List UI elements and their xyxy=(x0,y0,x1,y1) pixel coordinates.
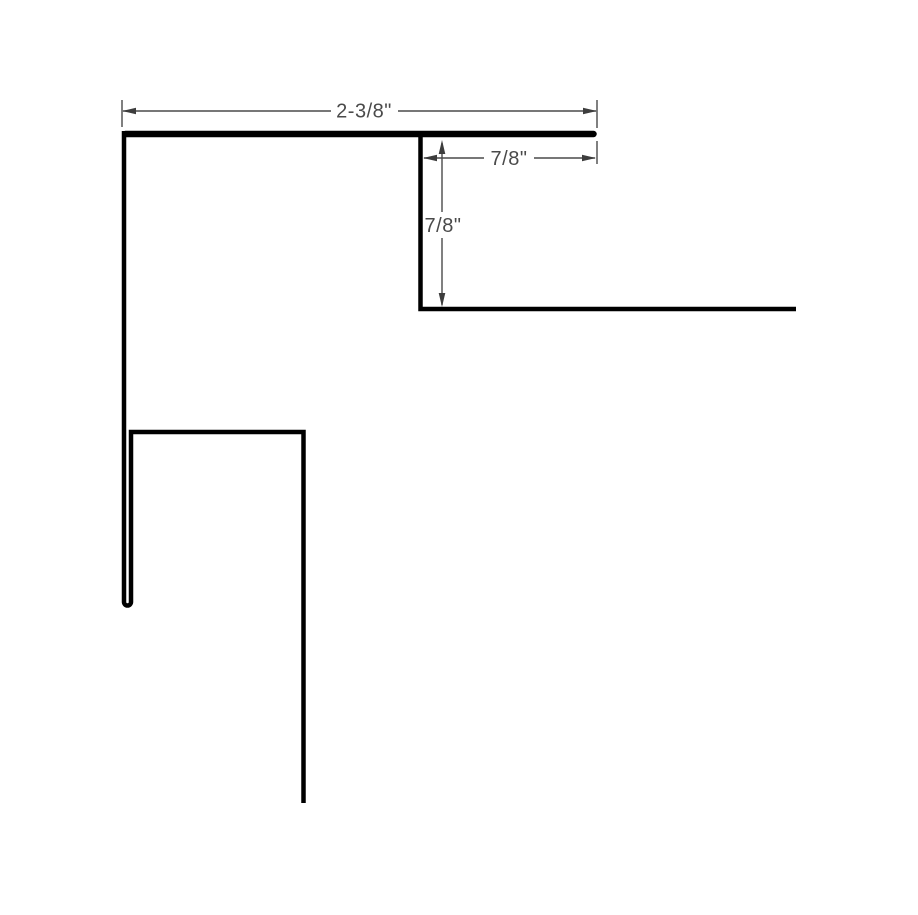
arrowhead-left-icon xyxy=(423,155,437,162)
drawing-canvas: 2-3/8" 7/8" 7/8" xyxy=(0,0,918,915)
profile-left-leg-and-hem xyxy=(124,131,304,803)
dimension-hem-return-width: 7/8" xyxy=(423,141,597,170)
profile-right-return xyxy=(421,136,797,309)
dimension-label-top-width: 2-3/8" xyxy=(336,101,392,123)
dimension-label-hem-return-width: 7/8" xyxy=(491,148,528,170)
dimension-return-drop-height: 7/8" xyxy=(425,140,462,307)
arrowhead-left-icon xyxy=(122,108,136,115)
arrowhead-up-icon xyxy=(439,140,446,154)
arrowhead-down-icon xyxy=(439,293,446,307)
arrowhead-right-icon xyxy=(583,108,597,115)
dimension-label-return-drop-height: 7/8" xyxy=(425,215,462,237)
arrowhead-right-icon xyxy=(582,155,596,162)
dimension-top-width: 2-3/8" xyxy=(122,100,597,128)
trim-profile-diagram: 2-3/8" 7/8" 7/8" xyxy=(0,0,918,915)
